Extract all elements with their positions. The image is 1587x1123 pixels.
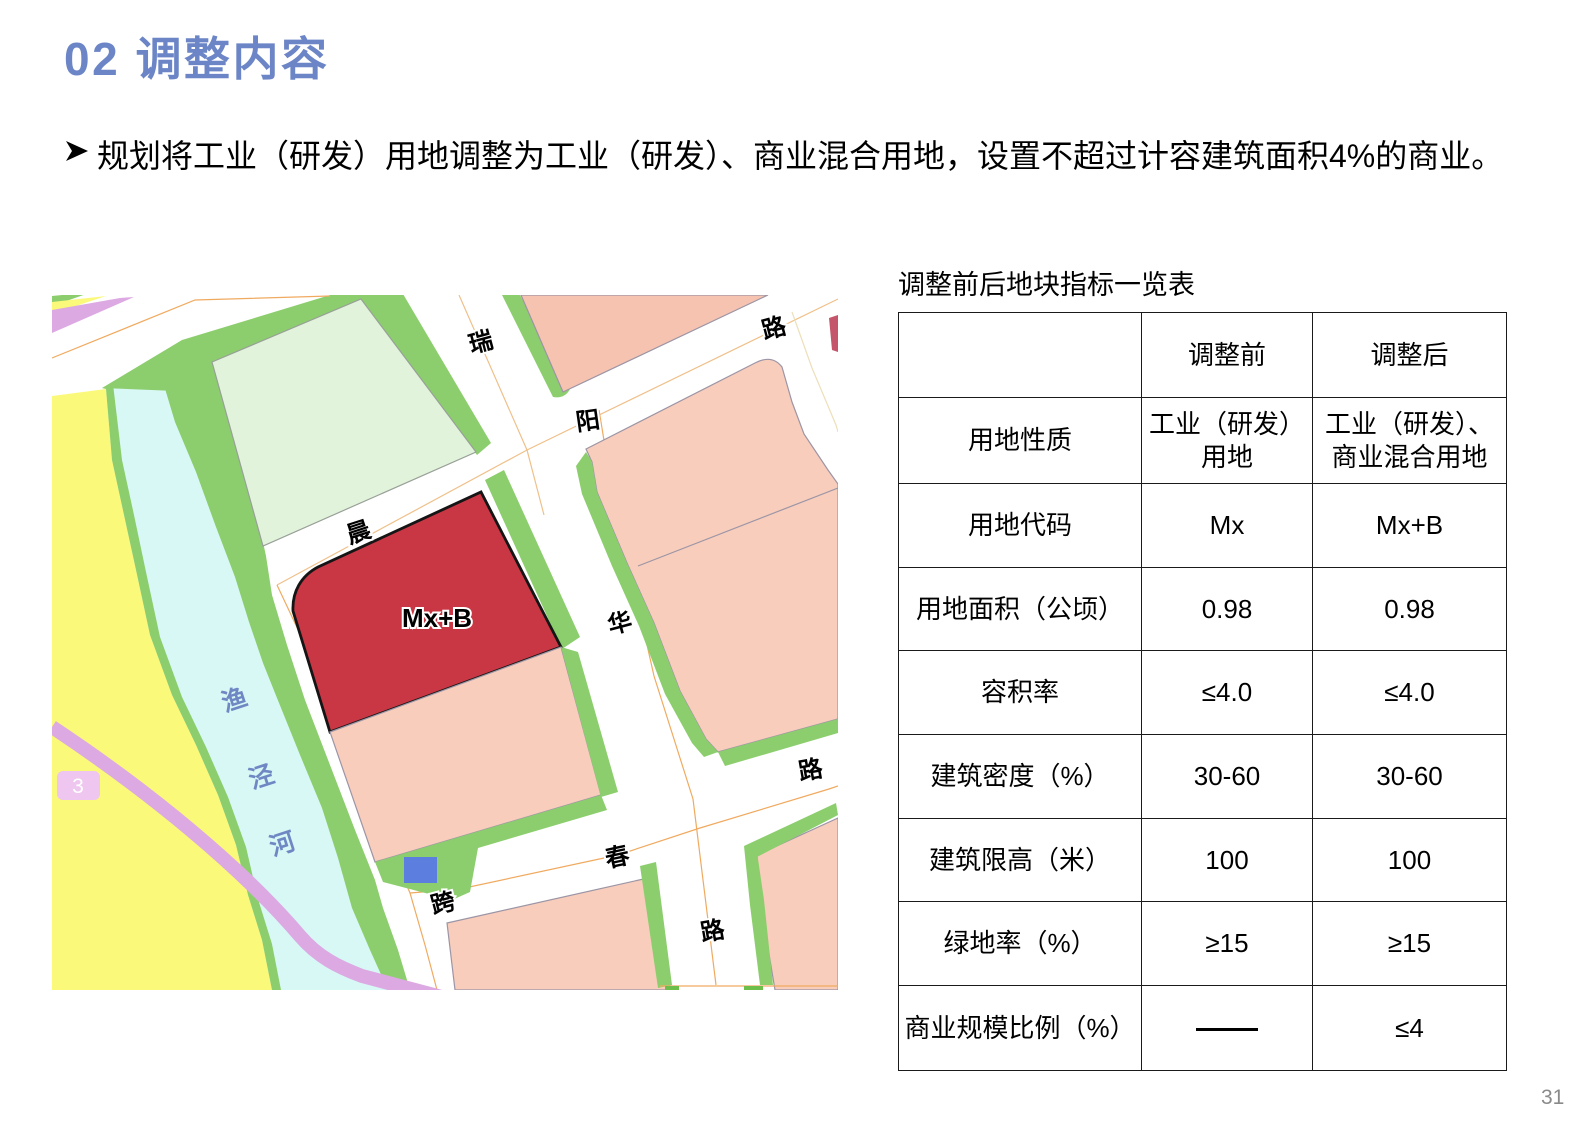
svg-text:Mx+B: Mx+B — [402, 603, 472, 633]
svg-text:3: 3 — [72, 775, 84, 798]
svg-text:阳: 阳 — [574, 407, 602, 437]
